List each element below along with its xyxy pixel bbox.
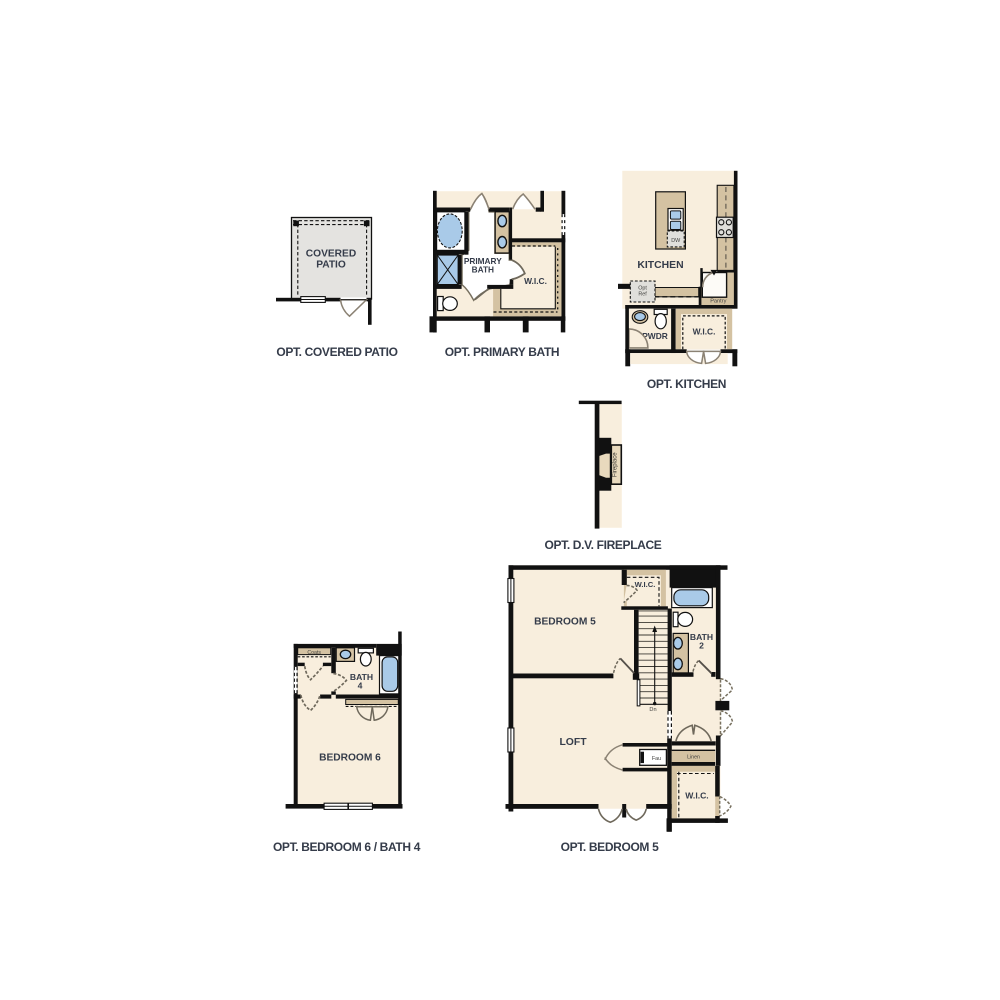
svg-text:OPT. COVERED PATIO: OPT. COVERED PATIO: [276, 345, 397, 359]
svg-text:Fireplace: Fireplace: [613, 452, 619, 477]
svg-text:OPT. KITCHEN: OPT. KITCHEN: [647, 377, 726, 391]
svg-text:BEDROOM 6: BEDROOM 6: [319, 753, 381, 764]
svg-text:LOFT: LOFT: [559, 737, 587, 748]
svg-text:BATH: BATH: [472, 264, 494, 274]
svg-text:4: 4: [358, 680, 363, 690]
svg-text:PATIO: PATIO: [316, 260, 346, 271]
svg-text:Pantry: Pantry: [710, 299, 726, 305]
svg-text:OPT. BEDROOM 6 / BATH 4: OPT. BEDROOM 6 / BATH 4: [273, 840, 421, 854]
svg-text:Coats: Coats: [307, 650, 321, 656]
svg-text:OPT. BEDROOM 5: OPT. BEDROOM 5: [561, 840, 659, 854]
svg-text:W.I.C.: W.I.C.: [524, 276, 547, 286]
svg-text:Ref: Ref: [638, 292, 647, 298]
svg-text:COVERED: COVERED: [306, 249, 356, 260]
svg-text:2: 2: [699, 641, 704, 651]
svg-text:W.I.C.: W.I.C.: [685, 791, 708, 801]
svg-text:DW: DW: [671, 238, 681, 244]
svg-text:W.I.C.: W.I.C.: [693, 327, 716, 337]
svg-text:Linen: Linen: [687, 755, 700, 761]
svg-text:Dn: Dn: [649, 707, 656, 713]
svg-text:W.I.C.: W.I.C.: [635, 580, 656, 589]
svg-text:BEDROOM 5: BEDROOM 5: [534, 616, 596, 627]
svg-text:Fau: Fau: [652, 756, 661, 762]
svg-text:OPT. PRIMARY BATH: OPT. PRIMARY BATH: [445, 345, 560, 359]
svg-text:KITCHEN: KITCHEN: [637, 260, 683, 271]
svg-text:OPT. D.V. FIREPLACE: OPT. D.V. FIREPLACE: [545, 538, 662, 552]
